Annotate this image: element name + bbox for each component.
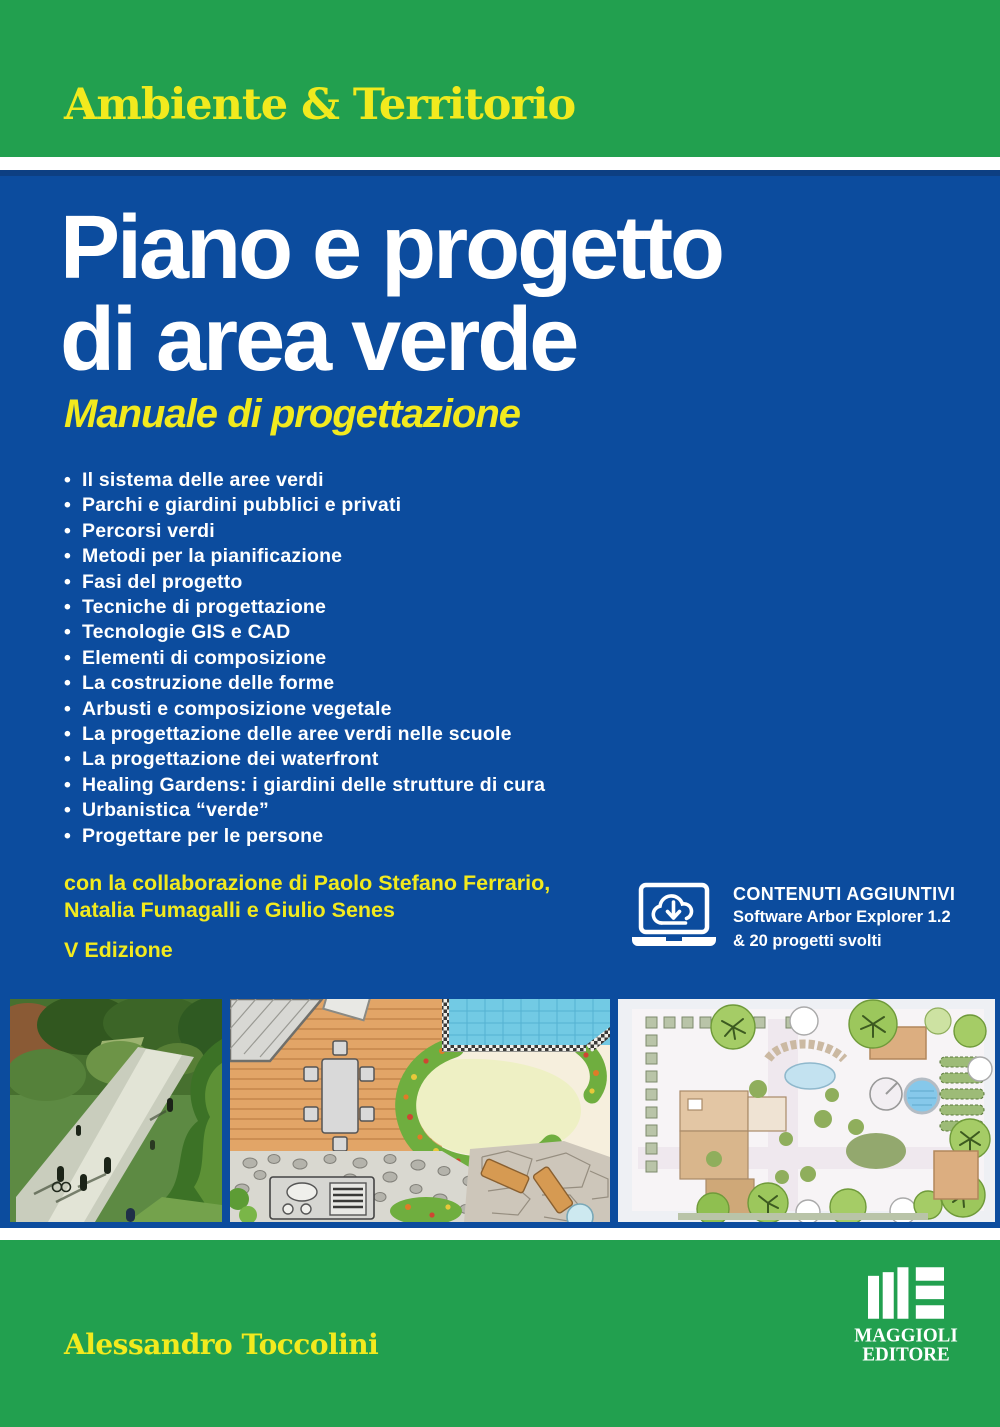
topic-text: Metodi per la pianificazione	[82, 545, 342, 567]
topic-item: •Tecniche di progettazione	[64, 595, 545, 620]
bullet: •	[64, 468, 82, 493]
laptop-cloud-download-icon	[628, 882, 720, 952]
additional-content-text: CONTENUTI AGGIUNTIVI Software Arbor Expl…	[733, 884, 955, 953]
topic-item: •Parchi e giardini pubblici e privati	[64, 493, 545, 518]
book-title-line1: Piano e progetto	[60, 202, 722, 294]
topics-list: •Il sistema delle aree verdi •Parchi e g…	[64, 468, 545, 849]
book-title-line2: di area verde	[60, 294, 722, 386]
bullet: •	[64, 773, 82, 798]
collaboration-line1: con la collaborazione di Paolo Stefano F…	[64, 870, 550, 897]
topic-text: Parchi e giardini pubblici e privati	[82, 494, 401, 516]
maggioli-editore-logo	[868, 1266, 944, 1320]
topic-item: •Il sistema delle aree verdi	[64, 468, 545, 493]
bullet: •	[64, 722, 82, 747]
topic-text: Urbanistica “verde”	[82, 799, 269, 821]
topic-item: •Fasi del progetto	[64, 570, 545, 595]
topic-text: Il sistema delle aree verdi	[82, 469, 324, 491]
topic-text: Elementi di composizione	[82, 647, 326, 669]
topic-text: Percorsi verdi	[82, 520, 215, 542]
topic-item: •Progettare per le persone	[64, 824, 545, 849]
topic-item: •La progettazione dei waterfront	[64, 747, 545, 772]
series-band: Ambiente & Territorio	[0, 0, 1000, 157]
topic-item: •Urbanistica “verde”	[64, 798, 545, 823]
bullet: •	[64, 519, 82, 544]
topic-text: Fasi del progetto	[82, 571, 243, 593]
edition-label: V Edizione	[64, 938, 173, 963]
divider-strip-top	[0, 157, 1000, 170]
topic-item: •Healing Gardens: i giardini delle strut…	[64, 773, 545, 798]
collaboration-line2: Natalia Fumagalli e Giulio Senes	[64, 897, 550, 924]
topic-item: •Percorsi verdi	[64, 519, 545, 544]
topic-text: La progettazione dei waterfront	[82, 748, 379, 770]
topic-item: •Elementi di composizione	[64, 646, 545, 671]
collaboration-credit: con la collaborazione di Paolo Stefano F…	[64, 870, 550, 924]
publisher-name-line1: MAGGIOLI	[843, 1326, 969, 1346]
book-cover: Ambiente & Territorio Piano e progetto d…	[0, 0, 1000, 1427]
topic-text: Arbusti e composizione vegetale	[82, 698, 392, 720]
topic-item: •Metodi per la pianificazione	[64, 544, 545, 569]
series-title: Ambiente & Territorio	[64, 80, 575, 130]
bullet: •	[64, 697, 82, 722]
topic-text: La costruzione delle forme	[82, 672, 334, 694]
publisher-block: MAGGIOLI EDITORE	[843, 1266, 969, 1364]
topic-text: La progettazione delle aree verdi nelle …	[82, 723, 512, 745]
topic-text: Progettare per le persone	[82, 825, 323, 847]
author-name: Alessandro Toccolini	[64, 1328, 378, 1361]
topic-item: •Arbusti e composizione vegetale	[64, 697, 545, 722]
bullet: •	[64, 798, 82, 823]
topic-text: Tecniche di progettazione	[82, 596, 326, 618]
bullet: •	[64, 824, 82, 849]
topic-text: Tecnologie GIS e CAD	[82, 621, 290, 643]
bullet: •	[64, 544, 82, 569]
cad-landscape-plan	[618, 999, 995, 1222]
additional-content-line1: Software Arbor Explorer 1.2	[733, 905, 955, 929]
book-title: Piano e progetto di area verde	[60, 202, 722, 386]
navy-edge-line	[0, 170, 1000, 176]
topic-item: •La progettazione delle aree verdi nelle…	[64, 722, 545, 747]
topic-text: Healing Gardens: i giardini delle strutt…	[82, 774, 545, 796]
bullet: •	[64, 671, 82, 696]
bullet: •	[64, 595, 82, 620]
additional-content-line2: & 20 progetti svolti	[733, 929, 955, 953]
greenway-path-aerial-photo	[10, 999, 222, 1222]
topic-item: •Tecnologie GIS e CAD	[64, 620, 545, 645]
additional-content-heading: CONTENUTI AGGIUNTIVI	[733, 884, 955, 905]
hand-drawn-garden-plan	[230, 999, 610, 1222]
bullet: •	[64, 620, 82, 645]
publisher-name-line2: EDITORE	[843, 1345, 969, 1365]
bullet: •	[64, 493, 82, 518]
bullet: •	[64, 570, 82, 595]
bullet: •	[64, 747, 82, 772]
bullet: •	[64, 646, 82, 671]
book-subtitle: Manuale di progettazione	[64, 392, 520, 437]
footer-band: Alessandro Toccolini MAGGIOLI EDITORE	[0, 1240, 1000, 1427]
cover-body: Piano e progetto di area verde Manuale d…	[0, 170, 1000, 1228]
divider-strip-bottom	[0, 1228, 1000, 1240]
topic-item: •La costruzione delle forme	[64, 671, 545, 696]
